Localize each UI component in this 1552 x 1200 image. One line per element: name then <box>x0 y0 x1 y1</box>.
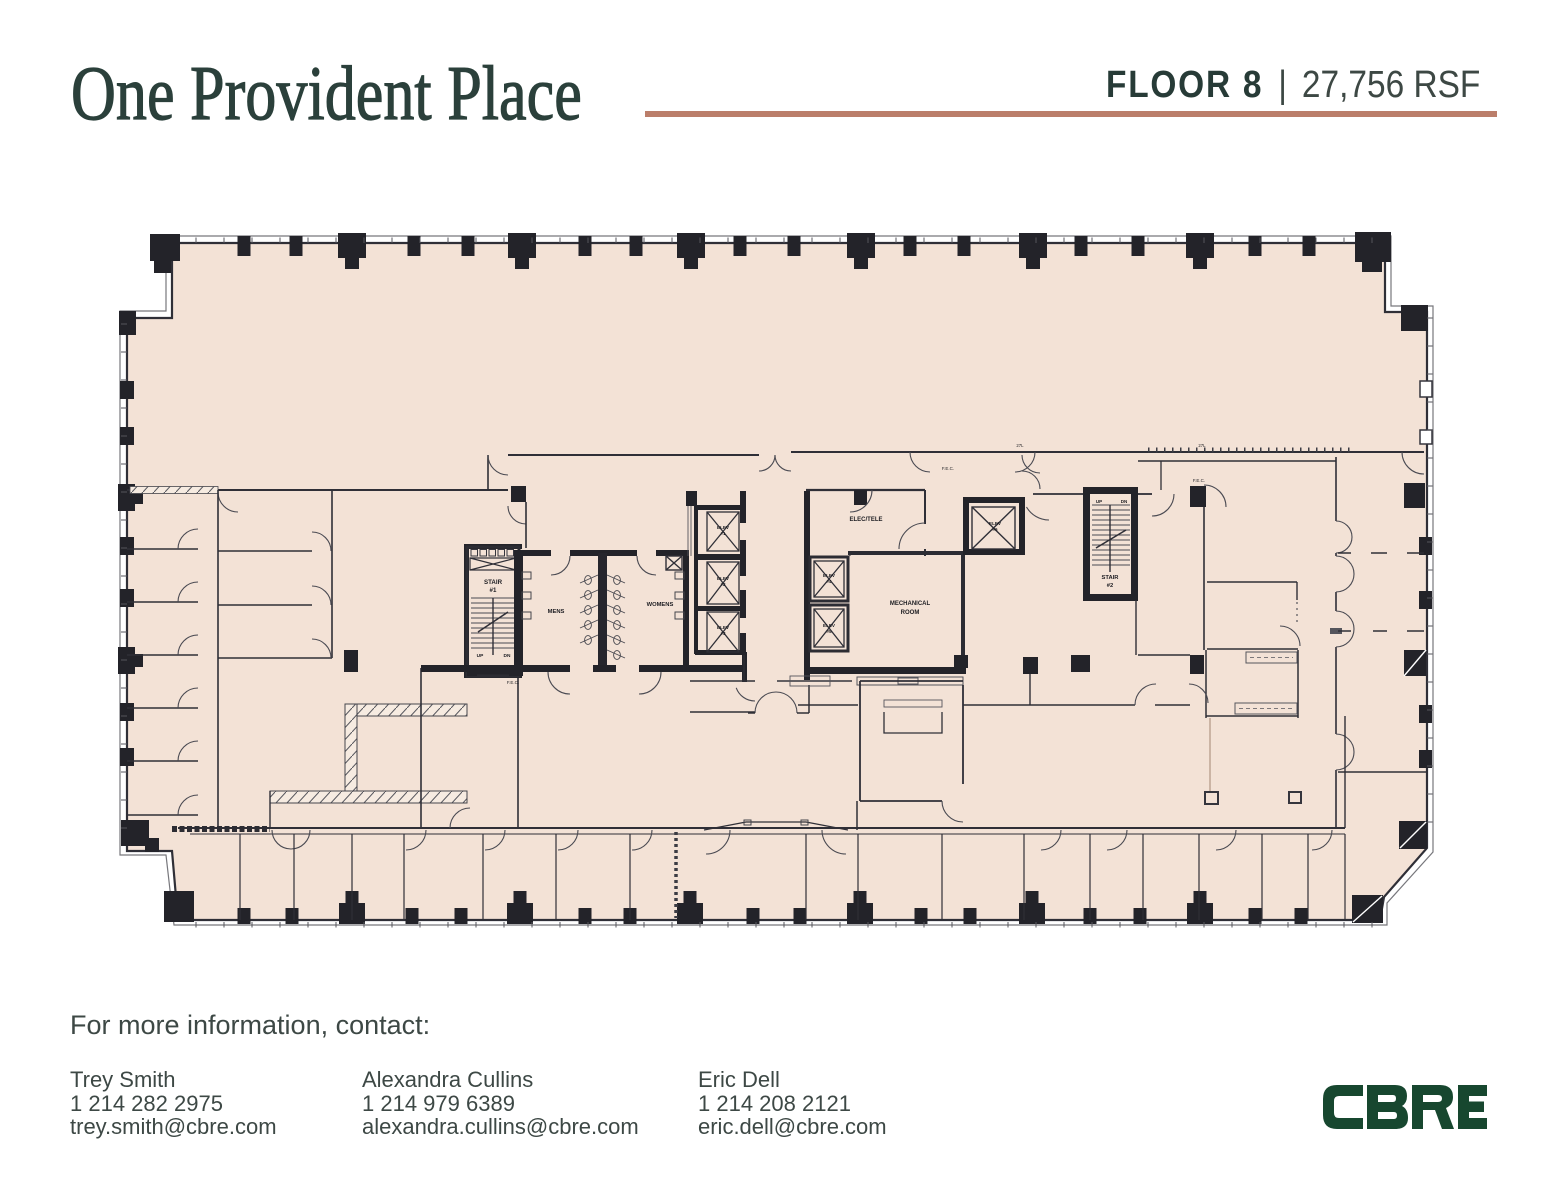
svg-text:F.E.C.: F.E.C. <box>942 466 954 471</box>
svg-text:DN: DN <box>504 653 511 659</box>
svg-text:UP: UP <box>477 653 484 659</box>
svg-text:ELEV: ELEV <box>717 576 730 581</box>
svg-text:WOMENS: WOMENS <box>647 602 674 608</box>
svg-text:DN: DN <box>1121 499 1128 504</box>
svg-text:#5: #5 <box>826 629 832 634</box>
svg-text:ELEV: ELEV <box>717 625 730 630</box>
svg-text:ELEC/TELE: ELEC/TELE <box>849 517 882 523</box>
svg-text:UP: UP <box>1096 499 1102 504</box>
svg-text:#2: #2 <box>1107 583 1113 589</box>
svg-text:#1: #1 <box>490 587 497 594</box>
svg-text:27L: 27L <box>1198 443 1206 448</box>
svg-text:#1: #1 <box>720 531 726 536</box>
svg-text:27L: 27L <box>1016 443 1024 448</box>
svg-text:F.E.C.: F.E.C. <box>1193 478 1205 483</box>
svg-text:MENS: MENS <box>548 609 565 615</box>
svg-text:ROOM: ROOM <box>901 610 920 616</box>
svg-text:MECHANICAL: MECHANICAL <box>890 601 931 607</box>
svg-text:STAIR: STAIR <box>1102 575 1120 581</box>
svg-text:#4: #4 <box>826 579 832 584</box>
svg-text:F.E.C.: F.E.C. <box>507 680 519 685</box>
svg-text:STAIR: STAIR <box>484 579 503 586</box>
svg-text:ELEV: ELEV <box>717 525 730 530</box>
svg-text:#3: #3 <box>720 631 726 636</box>
svg-text:#2: #2 <box>720 582 726 587</box>
svg-text:ELEV: ELEV <box>823 573 836 578</box>
svg-text:ELEV: ELEV <box>989 521 1002 526</box>
svg-text:#6: #6 <box>992 527 998 532</box>
svg-text:ELEV: ELEV <box>823 623 836 628</box>
